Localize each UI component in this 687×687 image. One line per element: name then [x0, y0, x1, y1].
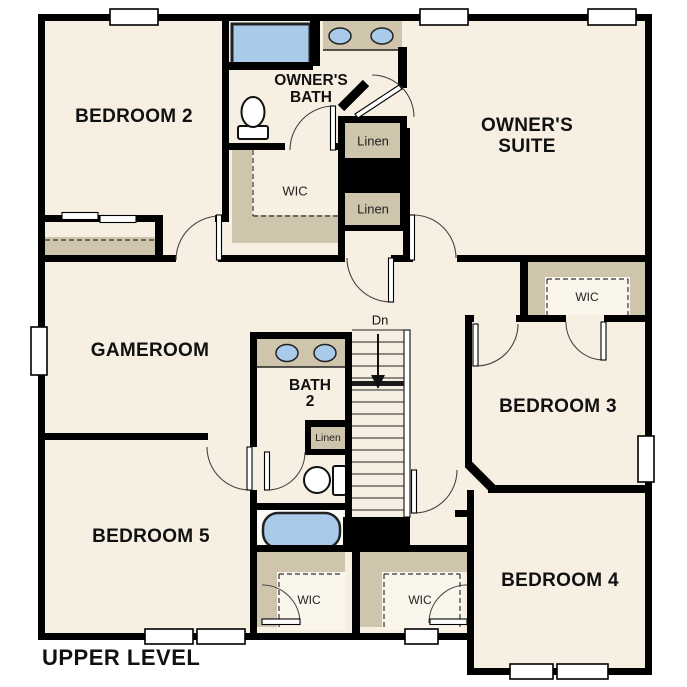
room-label-bedroom-2: BEDROOM 2 [75, 106, 193, 128]
window [145, 629, 193, 644]
door-leaf [473, 324, 478, 366]
window [510, 664, 553, 679]
door-leaf [410, 215, 415, 260]
shower [232, 24, 310, 64]
owners-bath-toilet [238, 97, 268, 139]
window [110, 9, 158, 25]
room-label-bedroom-5: BEDROOM 5 [92, 526, 210, 548]
door-leaf [430, 619, 467, 625]
bathtub [263, 513, 340, 548]
door-leaf [262, 619, 300, 625]
bath2-line2: 2 [289, 394, 331, 410]
room-label-owners-suite: OWNER'S SUITE [481, 115, 573, 157]
closet-label-bedroom5-wic: WIC [297, 593, 320, 607]
window [588, 9, 636, 25]
owners-suite-line1: OWNER'S [481, 115, 573, 136]
closet-label-bedroom3-wic: WIC [575, 290, 598, 304]
door-leaf [265, 452, 270, 490]
door-leaf [331, 106, 336, 150]
door-leaf [247, 447, 252, 490]
window [420, 9, 468, 25]
bath2-sink [314, 345, 336, 362]
window [31, 327, 47, 375]
owners-bath-line2: BATH [274, 89, 347, 106]
bath2-line1: BATH [289, 378, 331, 394]
room-label-bedroom-3: BEDROOM 3 [499, 396, 617, 418]
door-leaf [389, 258, 394, 302]
stair-rail [404, 330, 410, 517]
owners-bath-sink [371, 28, 393, 44]
closet-label-linen-lower: Linen [357, 202, 389, 217]
floor-plan-page: BEDROOM 2 OWNER'S BATH OWNER'S SUITE WIC… [0, 0, 687, 687]
owners-suite-line2: SUITE [481, 136, 573, 157]
bath2-toilet [304, 466, 346, 495]
window [197, 629, 245, 644]
stairs-direction-label: Dn [372, 313, 389, 328]
room-label-bedroom-4: BEDROOM 4 [501, 570, 619, 592]
closet-label-owners-wic: WIC [282, 184, 307, 199]
door-leaf [217, 215, 222, 260]
closet-label-bedroom4-wic: WIC [408, 593, 431, 607]
room-label-gameroom: GAMEROOM [91, 340, 210, 362]
closet-label-bath2-linen: Linen [315, 432, 341, 444]
closet-slider [100, 216, 136, 223]
window [557, 664, 608, 679]
room-label-owners-bath: OWNER'S BATH [274, 72, 347, 106]
page-title: UPPER LEVEL [42, 645, 200, 671]
window [638, 436, 654, 482]
window [405, 629, 438, 644]
door-leaf [601, 322, 606, 360]
owners-bath-sink [329, 28, 351, 44]
door-leaf [412, 470, 417, 513]
owners-bath-line1: OWNER'S [274, 72, 347, 89]
bath2-sink [276, 345, 298, 362]
room-label-bath-2: BATH 2 [289, 378, 331, 410]
closet-label-linen-upper: Linen [357, 134, 389, 149]
closet-slider [62, 213, 98, 220]
